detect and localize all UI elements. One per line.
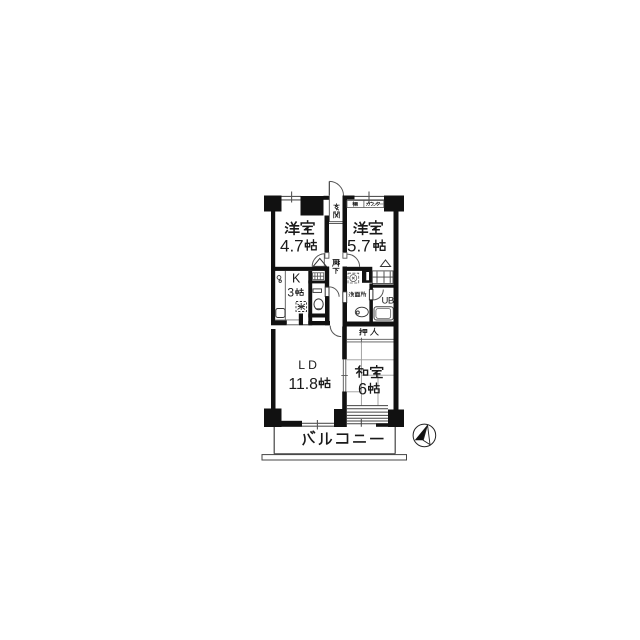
svg-text:5.7: 5.7 [347,237,371,256]
svg-text:K: K [292,271,301,285]
svg-text:UB: UB [382,295,394,306]
svg-text:11.8: 11.8 [288,376,318,393]
svg-text:3: 3 [287,285,294,299]
svg-text:6: 6 [358,380,367,398]
svg-text:4.7: 4.7 [280,236,304,255]
svg-text:LD: LD [298,358,320,372]
